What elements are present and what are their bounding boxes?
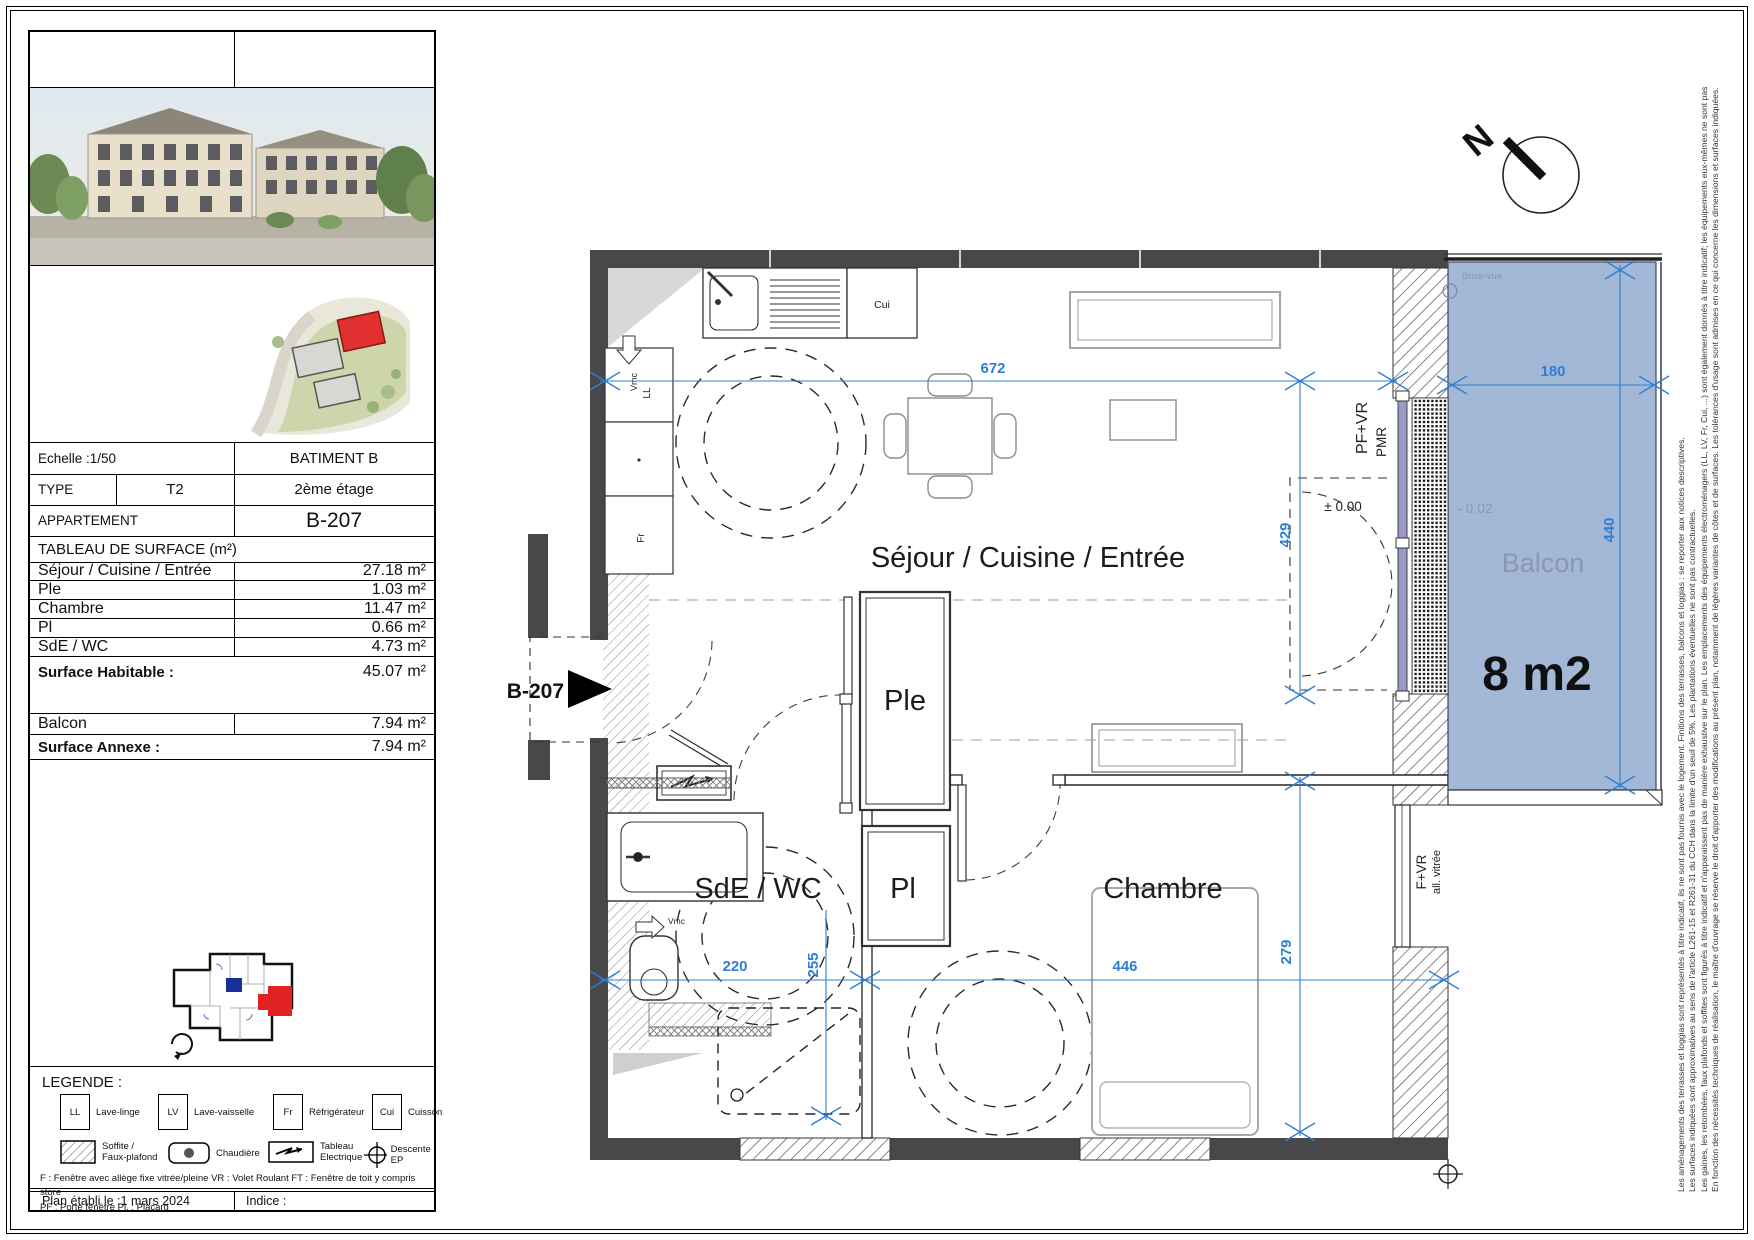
cui-label: Cui xyxy=(874,299,890,311)
balcon-area-label: 8 m2 xyxy=(1482,648,1591,701)
legend-symbol-tableau: TableauElectrique xyxy=(268,1140,362,1164)
type-label: TYPE xyxy=(30,474,116,505)
dim-220: 220 xyxy=(722,958,747,975)
row-value: 27.18 m² xyxy=(234,562,434,580)
footer-line xyxy=(30,1188,434,1189)
site-plan-thumbnail xyxy=(248,282,418,442)
row-label: Chambre xyxy=(30,600,234,618)
indice-label: Indice : xyxy=(246,1191,366,1210)
descente-label: Descente EP xyxy=(391,1144,437,1166)
cui-label: Cuisson xyxy=(408,1107,442,1118)
door-threshold xyxy=(605,778,731,788)
north-label: N xyxy=(1455,116,1501,164)
plan-date: Plan établi le :1 mars 2024 xyxy=(42,1191,234,1210)
sde-label: SdE / WC xyxy=(694,873,821,905)
soffite-icon xyxy=(60,1140,96,1164)
batiment-label: BATIMENT B xyxy=(234,442,434,474)
legend-appliance-fr: Fr Réfrigérateur xyxy=(273,1094,364,1130)
bed xyxy=(1092,888,1258,1135)
lv-label: Lave-vaisselle xyxy=(194,1107,254,1118)
table-row: Ple 1.03 m² xyxy=(30,581,434,600)
lv-dot xyxy=(637,458,640,461)
allvitree-label: all. vitrée xyxy=(1431,850,1443,894)
cui-symbol: Cui xyxy=(372,1094,402,1130)
echelle-label: Echelle :1/50 xyxy=(30,451,116,466)
legend-appliance-lv: LV Lave-vaisselle xyxy=(158,1094,254,1130)
chaudiere-icon xyxy=(168,1140,210,1166)
legend-symbol-soffite: Soffite /Faux-plafond xyxy=(60,1140,157,1164)
legend-appliance-ll: LL Lave-linge xyxy=(60,1094,140,1130)
row-label: Séjour / Cuisine / Entrée xyxy=(30,562,234,580)
balcon-room-label: Balcon xyxy=(1502,548,1585,578)
descente-ep-icon xyxy=(362,1140,387,1170)
table-row: Séjour / Cuisine / Entrée 27.18 m² xyxy=(30,562,434,581)
dim-279: 279 xyxy=(1278,939,1295,964)
row-label: Pl xyxy=(30,619,234,637)
chambre-label: Chambre xyxy=(1103,873,1222,905)
toilet xyxy=(630,936,678,1000)
row-line xyxy=(30,759,434,760)
building-photo xyxy=(30,88,434,266)
etage-value: 2ème étage xyxy=(234,474,434,505)
vmc-sde-label: Vmc xyxy=(668,916,686,926)
balcon-level: - 0.02 xyxy=(1457,500,1493,516)
disclaimer-line-2: Les gaines, les retombées, faux plafonds… xyxy=(1699,84,1710,1192)
disclaimer-line-4: Les aménagements des terrasses et loggia… xyxy=(1676,84,1687,1192)
chambre-window-fvr xyxy=(1395,805,1410,947)
row-value: 1.03 m² xyxy=(234,581,434,599)
appartement-value: B-207 xyxy=(234,505,434,536)
interior-level-label: ± 0.00 xyxy=(1324,499,1361,514)
pl-label: Pl xyxy=(890,873,916,905)
fr-symbol: Fr xyxy=(273,1094,303,1130)
disclaimer-text: Les aménagements des terrasses et loggia… xyxy=(1676,84,1721,1192)
dim-672: 672 xyxy=(980,360,1005,377)
fr-label: Réfrigérateur xyxy=(309,1107,364,1118)
dim-429: 429 xyxy=(1277,522,1294,547)
balcony: Brise-vue - 0.02 Balcon 8 m2 xyxy=(1443,254,1662,805)
legend-symbol-descente: Descente EP xyxy=(362,1140,436,1170)
row-label: Ple xyxy=(30,581,234,599)
balcony-window-pfvr xyxy=(1396,391,1448,701)
annexe-row: Surface Annexe : 7.94 m² xyxy=(30,735,434,759)
balcon-value: 7.94 m² xyxy=(234,715,434,733)
row-value: 4.73 m² xyxy=(234,638,434,656)
row-value: 11.47 m² xyxy=(234,600,434,618)
pmr-label: PMR xyxy=(1374,427,1389,457)
dresser xyxy=(1092,724,1242,772)
habitable-row: Surface Habitable : 45.07 m² xyxy=(30,659,434,685)
appartement-label: APPARTEMENT xyxy=(30,505,234,536)
tableau-electrique-icon xyxy=(268,1140,314,1164)
chaudiere-label: Chaudière xyxy=(216,1148,260,1159)
tableau-label-2: Electrique xyxy=(320,1152,362,1163)
pfvr-label: PF+VR xyxy=(1354,402,1371,454)
footer-divider xyxy=(234,1191,235,1210)
sde-door-arc xyxy=(734,695,840,800)
brise-vue-label: Brise-vue xyxy=(1462,271,1502,282)
vmc-kitchen-label: Vmc xyxy=(629,373,639,392)
annexe-value: 7.94 m² xyxy=(234,738,434,756)
habitable-value: 45.07 m² xyxy=(234,663,434,681)
table-row: SdE / WC 4.73 m² xyxy=(30,638,434,657)
disclaimer-line-1: En fonction des nécessités techniques de… xyxy=(1710,84,1721,1192)
balcon-row: Balcon 7.94 m² xyxy=(30,713,434,735)
row-value: 0.66 m² xyxy=(234,619,434,637)
ceiling-drop-guides xyxy=(649,600,1288,740)
balcon-label: Balcon xyxy=(30,715,234,733)
surface-table-title: TABLEAU DE SURFACE (m²) xyxy=(30,536,434,562)
legend-title: LEGENDE : xyxy=(42,1074,122,1091)
lv-symbol: LV xyxy=(158,1094,188,1130)
fr-plan-label: Fr xyxy=(636,533,647,543)
floor-plan: N xyxy=(440,110,1730,1210)
soffite-label-2: Faux-plafond xyxy=(102,1152,157,1163)
ll-plan-label: LL xyxy=(642,387,653,399)
tableau-label-1: Tableau xyxy=(320,1141,353,1152)
coffee-table xyxy=(1110,400,1176,440)
disclaimer-line-3: Les surfaces indiquées sont approximativ… xyxy=(1687,84,1698,1192)
dim-446: 446 xyxy=(1112,958,1137,975)
table-row: Chambre 11.47 m² xyxy=(30,600,434,619)
north-compass: N xyxy=(1455,116,1579,213)
sofa xyxy=(1070,292,1280,348)
dining-table xyxy=(884,374,1016,498)
legend-symbol-chaudiere: Chaudière xyxy=(168,1140,260,1166)
sejour-label: Séjour / Cuisine / Entrée xyxy=(871,542,1185,574)
header-strip-divider xyxy=(234,32,235,88)
legend-top-line xyxy=(30,1066,434,1067)
header-strip xyxy=(30,32,434,88)
annexe-label: Surface Annexe : xyxy=(30,739,234,756)
ple-label: Ple xyxy=(884,685,926,717)
title-block-panel: Echelle :1/50 BATIMENT B TYPE T2 2ème ét… xyxy=(28,30,436,1212)
descente-ep-plan-icon xyxy=(1433,1159,1463,1189)
dim-180: 180 xyxy=(1540,363,1565,380)
fvr-label: F+VR xyxy=(1414,854,1429,889)
dim-440: 440 xyxy=(1601,517,1618,542)
chambre-door xyxy=(958,784,1060,881)
ll-symbol: LL xyxy=(60,1094,90,1130)
dim-255: 255 xyxy=(805,952,822,977)
soffite-label-1: Soffite / xyxy=(102,1141,134,1152)
row-label: SdE / WC xyxy=(30,638,234,656)
table-row: Pl 0.66 m² xyxy=(30,619,434,638)
footer-line3 xyxy=(30,1210,434,1211)
type-value: T2 xyxy=(116,474,234,505)
habitable-label: Surface Habitable : xyxy=(30,664,234,681)
key-plan xyxy=(160,944,320,1062)
shower-drain xyxy=(731,1089,743,1101)
ll-label: Lave-linge xyxy=(96,1107,140,1118)
entrance-label: B-207 xyxy=(507,680,564,703)
legend-appliance-cui: Cui Cuisson xyxy=(372,1094,442,1130)
